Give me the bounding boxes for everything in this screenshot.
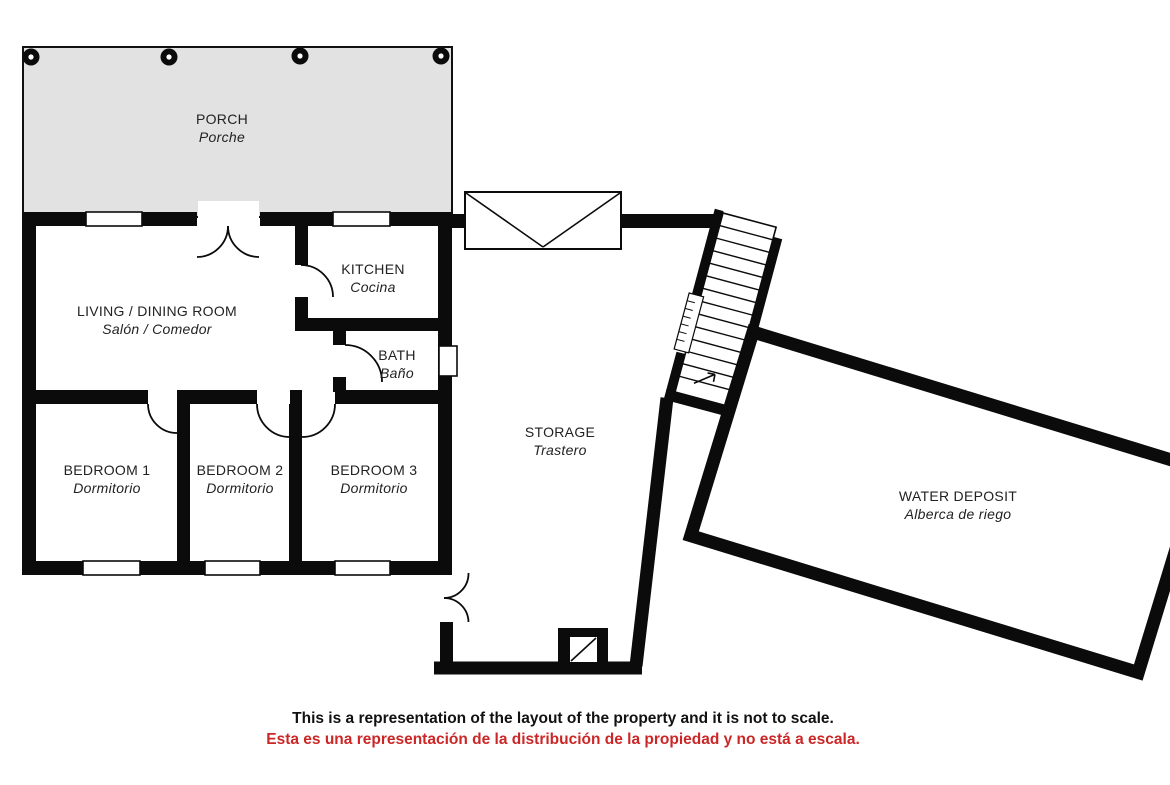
disclaimer-english: This is a representation of the layout o…	[266, 708, 860, 729]
room-name-es: Alberca de riego	[899, 505, 1017, 523]
room-label-porch: PORCH Porche	[196, 110, 248, 146]
room-name-es: Dormitorio	[331, 479, 418, 497]
floor-plan-svg	[0, 0, 1170, 785]
room-label-bedroom2: BEDROOM 2 Dormitorio	[197, 461, 284, 497]
hatch-symbol	[558, 628, 608, 668]
room-label-bedroom3: BEDROOM 3 Dormitorio	[331, 461, 418, 497]
room-label-living: LIVING / DINING ROOM Salón / Comedor	[77, 302, 237, 338]
room-label-kitchen: KITCHEN Cocina	[341, 260, 405, 296]
room-name-es: Dormitorio	[64, 479, 151, 497]
room-label-storage: STORAGE Trastero	[525, 423, 595, 459]
room-label-bath: BATH Baño	[378, 346, 416, 382]
room-name: PORCH	[196, 110, 248, 128]
room-name: LIVING / DINING ROOM	[77, 302, 237, 320]
room-name: WATER DEPOSIT	[899, 487, 1017, 505]
room-name: BATH	[378, 346, 416, 364]
room-name: STORAGE	[525, 423, 595, 441]
room-name: KITCHEN	[341, 260, 405, 278]
room-name-es: Porche	[196, 128, 248, 146]
room-name-es: Trastero	[525, 441, 595, 459]
disclaimer-spanish: Esta es una representación de la distrib…	[266, 729, 860, 750]
room-name-es: Cocina	[341, 278, 405, 296]
roof-window-symbol	[465, 192, 621, 249]
room-name-es: Dormitorio	[197, 479, 284, 497]
room-name-es: Baño	[378, 364, 416, 382]
room-name-es: Salón / Comedor	[77, 320, 237, 338]
room-name: BEDROOM 3	[331, 461, 418, 479]
disclaimer: This is a representation of the layout o…	[266, 708, 860, 750]
room-label-water-deposit: WATER DEPOSIT Alberca de riego	[899, 487, 1017, 523]
room-name: BEDROOM 2	[197, 461, 284, 479]
room-label-bedroom1: BEDROOM 1 Dormitorio	[64, 461, 151, 497]
floor-plan: PORCH Porche LIVING / DINING ROOM Salón …	[0, 0, 1170, 785]
room-name: BEDROOM 1	[64, 461, 151, 479]
